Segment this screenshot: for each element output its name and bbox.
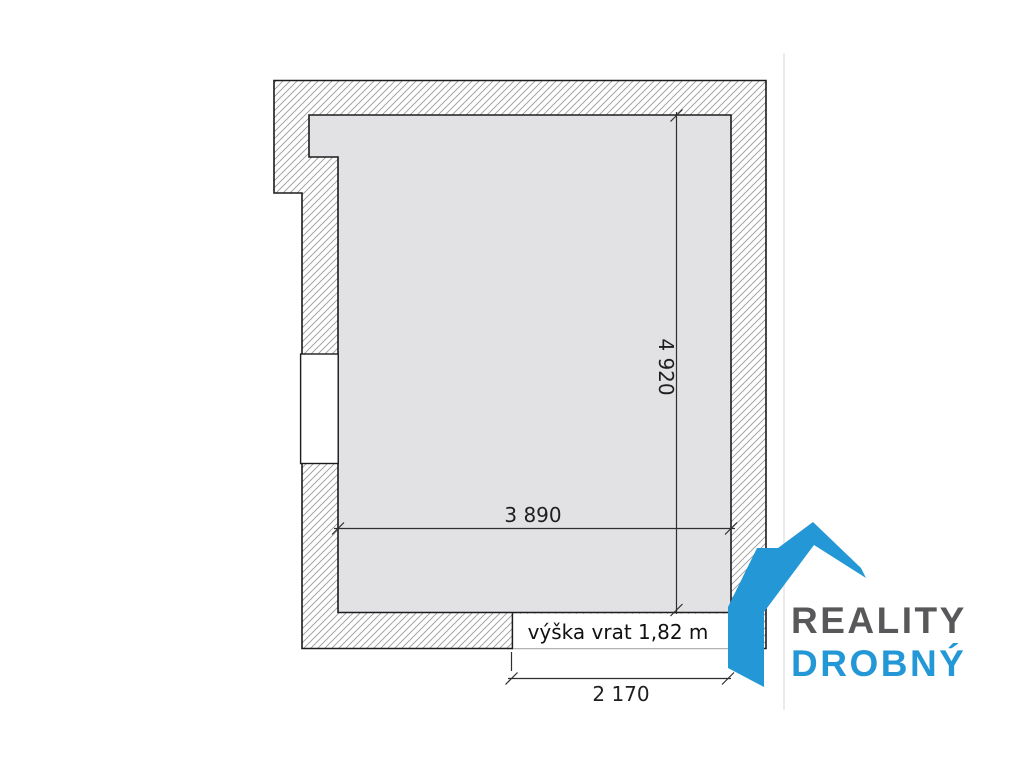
dimension-height-label: 4 920 (654, 338, 678, 395)
window-opening (301, 354, 339, 464)
floor-plan-drawing: 4 920 3 890 výška vrat 1,82 m 2 170 REAL… (0, 0, 1024, 768)
logo-word-drobny: DROBNÝ (791, 643, 966, 684)
door-height-note: výška vrat 1,82 m (528, 620, 709, 644)
logo-word-reality: REALITY (791, 600, 967, 641)
floor-plan-page: 4 920 3 890 výška vrat 1,82 m 2 170 REAL… (0, 0, 1024, 768)
dimension-door-label: 2 170 (592, 682, 649, 706)
dimension-width-label: 3 890 (504, 503, 561, 527)
dimension-door (506, 652, 735, 685)
